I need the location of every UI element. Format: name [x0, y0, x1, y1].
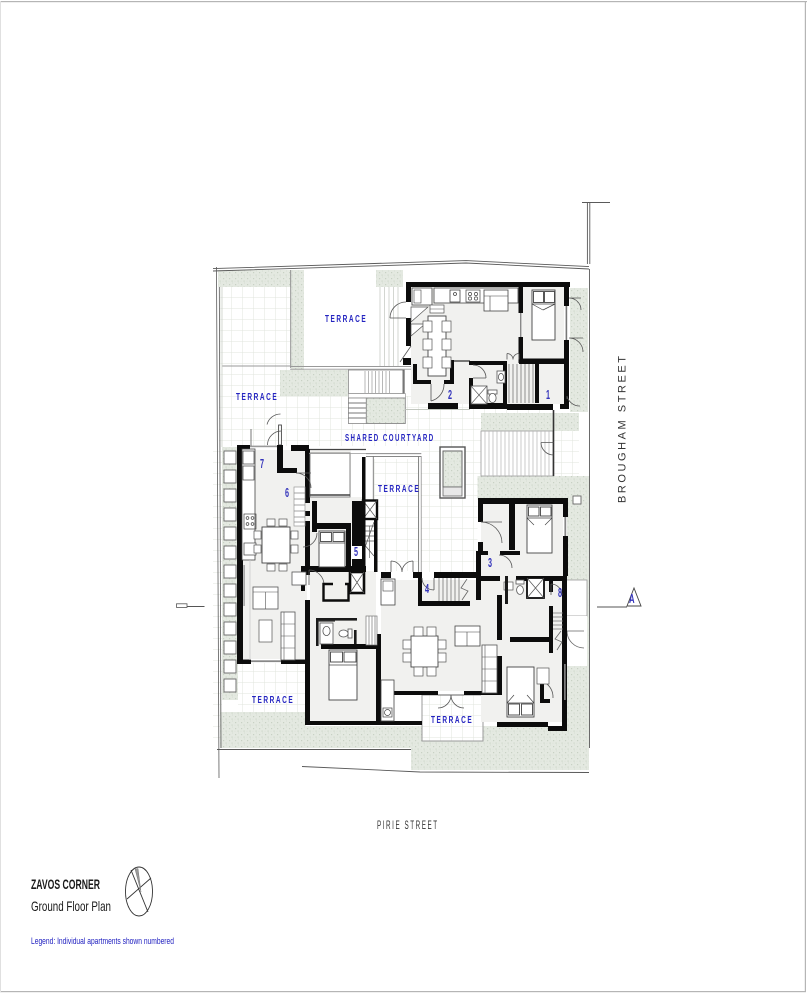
svg-text:Ground Floor Plan: Ground Floor Plan	[31, 898, 111, 914]
svg-text:TERRACE: TERRACE	[325, 312, 367, 324]
svg-text:5: 5	[354, 546, 358, 559]
svg-text:A: A	[629, 593, 635, 606]
svg-text:TERRACE: TERRACE	[236, 390, 278, 402]
svg-text:8: 8	[558, 587, 562, 600]
svg-text:1: 1	[546, 389, 550, 402]
svg-text:7: 7	[260, 458, 264, 471]
svg-text:SHARED COURTYARD: SHARED COURTYARD	[345, 431, 435, 443]
svg-text:4: 4	[425, 583, 429, 596]
svg-text:2: 2	[448, 389, 452, 402]
svg-text:TERRACE: TERRACE	[378, 482, 420, 494]
svg-text:BROUGHAM STREET: BROUGHAM STREET	[617, 356, 629, 503]
svg-text:TERRACE: TERRACE	[431, 713, 473, 725]
svg-text:Legend: Individual apartments: Legend: Individual apartments shown numb…	[31, 936, 174, 947]
svg-text:ZAVOS CORNER: ZAVOS CORNER	[31, 876, 100, 892]
svg-text:TERRACE: TERRACE	[252, 693, 294, 705]
svg-text:PIRIE STREET: PIRIE STREET	[377, 819, 439, 831]
svg-text:6: 6	[285, 487, 289, 500]
svg-text:3: 3	[488, 557, 492, 570]
